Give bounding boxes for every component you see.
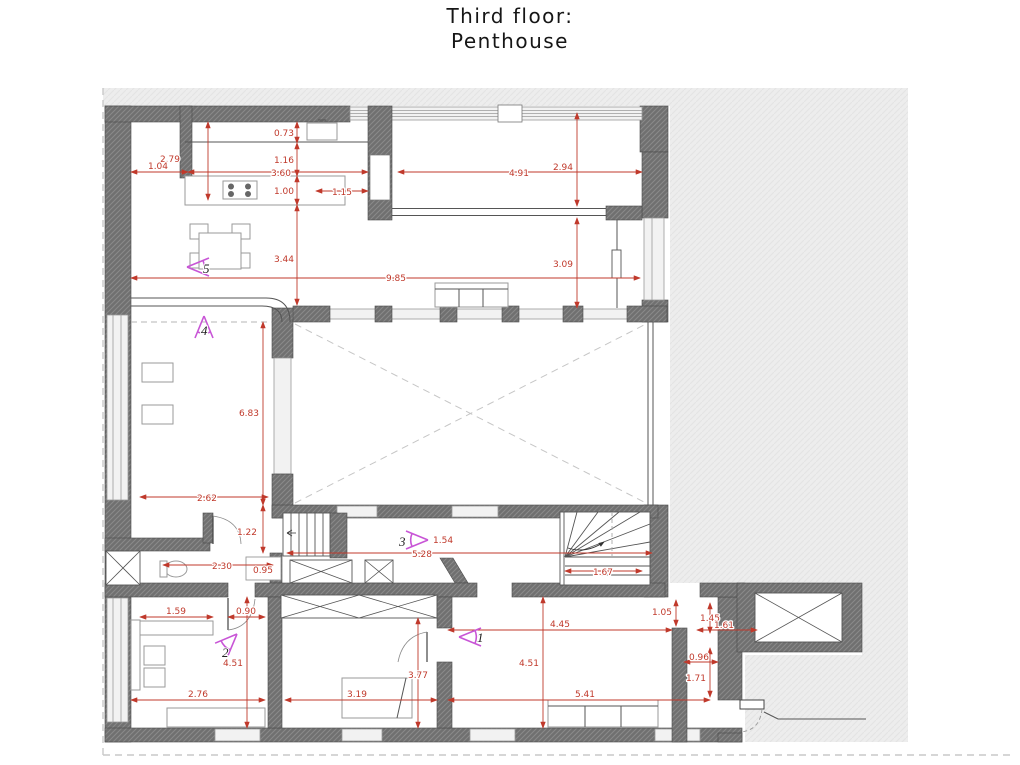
window-left-study xyxy=(107,598,128,722)
title-line1: Third floor: xyxy=(0,4,1020,29)
camera-icon-3 xyxy=(406,531,428,549)
window-bottom-2 xyxy=(342,729,382,741)
dim-label-1-67: 1.67 xyxy=(593,568,613,578)
void-pillar-4 xyxy=(502,306,519,322)
camera-label-5: 5 xyxy=(203,261,210,276)
dim-label-1-71: 1.71 xyxy=(686,674,706,684)
void-pillar-1 xyxy=(293,306,330,322)
void-pillar-3 xyxy=(440,306,457,322)
camera-icon-2 xyxy=(215,628,243,656)
dim-label-3-60: 3.60 xyxy=(271,169,291,179)
wall-right-upper xyxy=(642,152,668,218)
dim-label-0-95: 0.95 xyxy=(253,566,273,576)
dim-label-3-44: 3.44 xyxy=(274,255,294,265)
camera-label-4: 4 xyxy=(201,323,208,338)
dim-label-4-51-left: 4.51 xyxy=(223,659,243,669)
sofa-lower xyxy=(548,700,658,727)
floorplan-drawing: 0.73 1.16 3.60 1.00 1.15 2.79 1.04 3.44 … xyxy=(0,0,1020,765)
dim-label-4-51-right: 4.51 xyxy=(519,659,539,669)
void-pillar-2 xyxy=(375,306,392,322)
dim-label-1-15: 1.15 xyxy=(332,188,352,198)
dim-label-4-45: 4.45 xyxy=(550,620,570,630)
window-bottom-1 xyxy=(215,729,260,741)
camera-label-3: 3 xyxy=(398,534,406,549)
dim-label-2-76: 2.76 xyxy=(188,690,208,700)
patio-void xyxy=(272,306,667,518)
toilet xyxy=(160,561,187,577)
void-window-bottom-2 xyxy=(452,506,498,517)
floorplan-page: Third floor: Penthouse xyxy=(0,0,1020,765)
door-bedroom xyxy=(398,632,427,662)
side-table-2 xyxy=(142,405,173,424)
camera-label-1: 1 xyxy=(477,630,484,645)
wall-bottom xyxy=(105,728,742,742)
void-x-mark xyxy=(295,324,646,503)
furniture xyxy=(131,120,658,727)
void-pillar-6 xyxy=(627,306,667,322)
wall-topright-corner xyxy=(640,106,668,152)
window-right-room xyxy=(644,218,664,300)
dim-label-3-19: 3.19 xyxy=(347,690,367,700)
dim-label-1-00: 1.00 xyxy=(274,187,294,197)
wall-wc-stub xyxy=(203,513,213,543)
wardrobe-bedroom xyxy=(281,595,437,618)
void-pillar-5 xyxy=(563,306,583,322)
void-glazing-top xyxy=(293,309,667,319)
curved-wall-outer xyxy=(131,298,290,322)
wall-bedroomTR-stub xyxy=(606,206,642,220)
wall-cabinet xyxy=(307,123,337,140)
dim-label-5-41: 5.41 xyxy=(575,690,595,700)
dim-label-1-54: 1.54 xyxy=(433,536,453,546)
camera-label-2: 2 xyxy=(222,645,229,660)
dim-label-9-85: 9.85 xyxy=(386,274,406,284)
side-table-1 xyxy=(142,363,173,382)
study-desk xyxy=(131,620,265,727)
void-window-left xyxy=(274,358,291,474)
dim-label-5-28: 5.28 xyxy=(412,550,432,560)
page-title: Third floor: Penthouse xyxy=(0,4,1020,54)
shaft-box-left xyxy=(106,551,140,585)
dim-label-3-77: 3.77 xyxy=(408,671,428,681)
title-line2: Penthouse xyxy=(0,29,1020,54)
window-pillar xyxy=(498,105,522,122)
dim-label-0-96: 0.96 xyxy=(689,653,709,663)
door-kitchen-opening xyxy=(370,155,390,200)
wall-living-corridor xyxy=(672,628,687,742)
dim-label-6-83: 6.83 xyxy=(239,409,259,419)
dim-label-2-62: 2.62 xyxy=(197,494,217,504)
dim-label-0-73: 0.73 xyxy=(274,129,294,139)
wall-wing-right-lower xyxy=(718,733,742,742)
dim-label-4-91: 4.91 xyxy=(509,169,529,179)
dim-label-1-22: 1.22 xyxy=(237,528,257,538)
wall-stair-stub xyxy=(330,513,347,558)
window-bottom-3 xyxy=(470,729,515,741)
elevator-shaft xyxy=(737,583,862,652)
dim-label-1-61: 1.61 xyxy=(714,621,734,631)
window-left-living xyxy=(107,315,128,500)
sofa-upper xyxy=(435,283,508,307)
wall-bedroom-living-up xyxy=(437,597,452,628)
dim-label-1-05: 1.05 xyxy=(652,608,672,618)
wall-study-bedroom xyxy=(268,597,282,728)
stove xyxy=(223,181,257,199)
dim-label-2-30: 2.30 xyxy=(212,562,232,572)
window-top-band xyxy=(350,105,642,122)
curved-wall-inner xyxy=(131,306,282,322)
door-closet xyxy=(612,250,621,278)
dim-label-2-94: 2.94 xyxy=(553,163,573,173)
dim-label-1-59: 1.59 xyxy=(166,607,186,617)
wall-bedroom-living-low xyxy=(437,662,452,728)
dim-label-3-09: 3.09 xyxy=(553,260,573,270)
dim-label-1-16: 1.16 xyxy=(274,156,294,166)
wall-wc-top xyxy=(105,538,210,551)
closet-box-2 xyxy=(365,560,393,583)
dim-label-0-90: 0.90 xyxy=(236,607,256,617)
staircase-straight xyxy=(283,513,330,556)
wall-diagonal-piece xyxy=(440,558,468,583)
closet-box-1 xyxy=(290,560,352,583)
dim-label-1-04: 1.04 xyxy=(148,162,168,172)
wall-top xyxy=(105,106,350,122)
